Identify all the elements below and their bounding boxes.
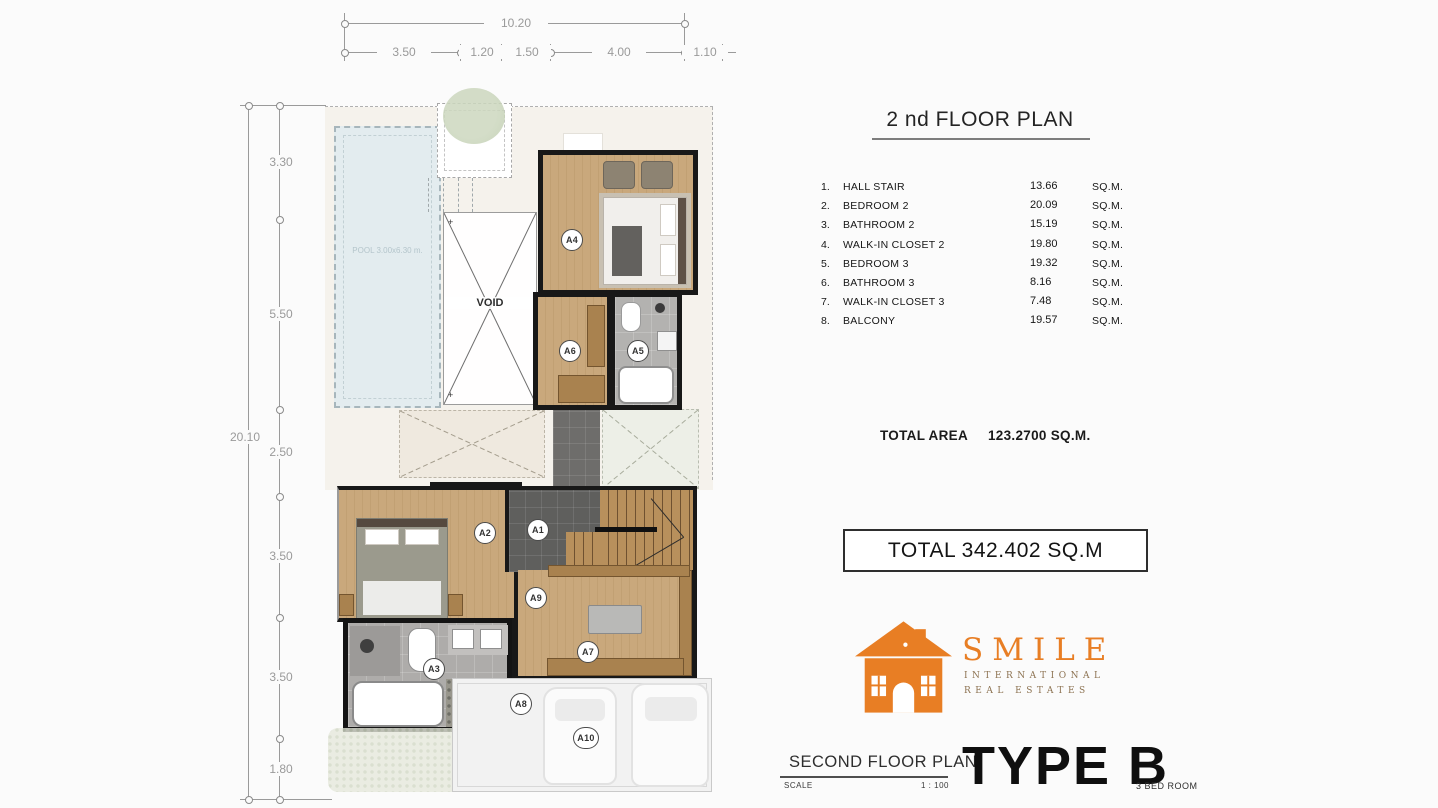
room-marker-a6: A6 — [559, 340, 581, 362]
house-logo-icon — [855, 621, 952, 713]
bed-sheet — [363, 581, 441, 615]
roofline-dashed — [712, 107, 713, 480]
wardrobe — [558, 375, 605, 403]
legend-row-unit: SQ.M. — [1092, 181, 1123, 193]
dim-top-seg-5: 1.10 — [682, 45, 728, 59]
legend-row-unit: SQ.M. — [1092, 315, 1123, 327]
room-marker-a3: A3 — [423, 658, 445, 680]
shower-head-icon — [655, 303, 665, 313]
sink-icon — [657, 331, 677, 351]
walkway-line — [443, 178, 444, 212]
toilet-icon — [621, 302, 641, 332]
legend-row-name: WALK-IN CLOSET 3 — [843, 296, 945, 308]
pillow — [365, 529, 399, 545]
dim-tick-icon — [276, 735, 284, 743]
legend-row-no: 6. — [821, 277, 837, 289]
dim-left-seg-6: 1.80 — [257, 762, 305, 776]
legend-row-name: BEDROOM 2 — [843, 200, 909, 212]
stair-handrail — [595, 527, 657, 532]
stair-direction-lines-icon — [600, 490, 693, 576]
grand-total-box: TOTAL 342.402 SQ.M — [843, 529, 1148, 572]
dim-top-seg-2: 1.20 — [459, 45, 505, 59]
legend-row-no: 8. — [821, 315, 837, 327]
dim-extension-line — [240, 799, 332, 800]
legend-row-name: BALCONY — [843, 315, 895, 327]
legend-row-no: 5. — [821, 258, 837, 270]
legend-row-area: 15.19 — [1030, 218, 1058, 230]
armchair-icon — [603, 161, 635, 189]
page-title: 2 nd FLOOR PLAN — [860, 108, 1100, 132]
legend-row-area: 13.66 — [1030, 180, 1058, 192]
headboard — [678, 198, 686, 284]
dim-tick-icon — [276, 102, 284, 110]
logo-subtext-1: INTERNATIONAL — [964, 671, 1104, 681]
room-marker-a5: A5 — [627, 340, 649, 362]
void-area: VOID + + — [443, 212, 537, 405]
dim-tick-icon — [276, 614, 284, 622]
room-marker-a9: A9 — [525, 587, 547, 609]
headboard — [357, 519, 447, 527]
dim-left-seg-4: 3.50 — [257, 549, 305, 563]
legend-row-unit: SQ.M. — [1092, 277, 1123, 289]
legend-row-area: 20.09 — [1030, 199, 1058, 211]
terrace-open-below — [399, 410, 545, 478]
walkway-line — [458, 178, 459, 212]
walkway-line — [428, 178, 429, 212]
dim-left-overall: 20.10 — [220, 430, 270, 444]
dim-tick-icon — [681, 20, 689, 28]
sink-icon — [452, 629, 474, 649]
armchair-icon — [641, 161, 673, 189]
roofline-dashed — [325, 106, 713, 107]
upper-hall-room — [518, 570, 697, 682]
sink-icon — [480, 629, 502, 649]
throw-blanket — [612, 226, 642, 276]
shower-area — [350, 626, 400, 676]
legend-row-area: 19.57 — [1030, 314, 1058, 326]
table — [588, 605, 642, 634]
dim-tick-icon — [276, 406, 284, 414]
bedroom-3-room — [337, 486, 518, 622]
terrace-x-lines-icon — [400, 411, 544, 477]
floor-plan-sheet: 10.20 3.50 1.20 1.50 4.00 1.10 20.10 3.3 — [0, 0, 1438, 808]
legend-row-name: HALL STAIR — [843, 181, 905, 193]
legend-row-no: 7. — [821, 296, 837, 308]
bathtub-icon — [352, 681, 444, 727]
legend-row-unit: SQ.M. — [1092, 200, 1123, 212]
bathtub-icon — [618, 366, 674, 404]
total-area-value: 123.2700 SQ.M. — [988, 428, 1091, 443]
dim-left-seg-1: 3.30 — [257, 155, 305, 169]
room-marker-a8: A8 — [510, 693, 532, 715]
dim-tick-icon — [276, 216, 284, 224]
bench — [547, 658, 684, 676]
dim-line — [248, 105, 249, 800]
windshield — [555, 699, 605, 721]
dim-left-seg-2: 5.50 — [257, 307, 305, 321]
void-label: VOID — [444, 297, 536, 309]
legend-row-unit: SQ.M. — [1092, 219, 1123, 231]
dim-tick-icon — [341, 49, 349, 57]
dim-tick-icon — [245, 796, 253, 804]
legend-row-area: 7.48 — [1030, 295, 1051, 307]
footer-bedroom-label: 3 BED ROOM — [1136, 781, 1198, 791]
bed — [356, 518, 448, 620]
dim-top-seg-4: 4.00 — [592, 45, 646, 59]
pool-inner-line — [343, 135, 432, 399]
bedroom-2-room — [538, 150, 698, 295]
dim-left-seg-3: 2.50 — [257, 445, 305, 459]
legend-row-area: 19.80 — [1030, 238, 1058, 250]
stair-edge-shelf — [548, 565, 690, 577]
legend-row-name: WALK-IN CLOSET 2 — [843, 239, 945, 251]
dim-left-seg-5: 3.50 — [257, 670, 305, 684]
dim-tick-icon — [276, 796, 284, 804]
legend-row-no: 4. — [821, 239, 837, 251]
pool: POOL 3.00x6.30 m. — [334, 126, 441, 408]
legend-row-name: BATHROOM 3 — [843, 277, 915, 289]
legend-row-name: BATHROOM 2 — [843, 219, 915, 231]
nightstand — [448, 594, 463, 616]
pillow — [405, 529, 439, 545]
car-icon — [631, 683, 709, 787]
nightstand — [339, 594, 354, 616]
legend-row-no: 3. — [821, 219, 837, 231]
walkway-line — [472, 178, 473, 212]
logo-brand-text: SMILE — [962, 632, 1115, 668]
legend-row-unit: SQ.M. — [1092, 239, 1123, 251]
tree-icon — [443, 88, 505, 144]
wardrobe — [587, 305, 605, 367]
total-area-label: TOTAL AREA — [880, 428, 968, 443]
footer-plan-name: SECOND FLOOR PLAN — [789, 753, 977, 772]
dim-top-seg-3: 1.50 — [503, 45, 551, 59]
legend-row-area: 8.16 — [1030, 276, 1051, 288]
legend-row-area: 19.32 — [1030, 257, 1058, 269]
footer-scale-label: SCALE — [784, 781, 813, 790]
dim-top-seg-1: 3.50 — [377, 45, 431, 59]
legend-row-unit: SQ.M. — [1092, 258, 1123, 270]
room-marker-a1: A1 — [527, 519, 549, 541]
legend-row-name: BEDROOM 3 — [843, 258, 909, 270]
dim-top-overall: 10.20 — [484, 16, 548, 30]
grass-patch — [328, 728, 462, 792]
legend-row-unit: SQ.M. — [1092, 296, 1123, 308]
dim-tick-icon — [341, 20, 349, 28]
legend-row-no: 1. — [821, 181, 837, 193]
logo-subtext-2: REAL ESTATES — [964, 686, 1090, 696]
plus-mark-icon: + — [448, 390, 453, 400]
dim-tick-icon — [245, 102, 253, 110]
pillow — [660, 204, 676, 236]
terrace-x-lines-icon — [603, 410, 698, 488]
plus-mark-icon: + — [448, 217, 453, 227]
shower-head-icon — [360, 639, 374, 653]
room-marker-a10: A10 — [573, 727, 599, 749]
pool-label: POOL 3.00x6.30 m. — [336, 246, 439, 255]
grand-total-text: TOTAL 342.402 SQ.M — [888, 539, 1103, 563]
bed — [603, 197, 687, 285]
room-marker-a4: A4 — [561, 229, 583, 251]
room-marker-a7: A7 — [577, 641, 599, 663]
title-underline — [872, 138, 1090, 140]
terrace-open-below — [602, 409, 699, 489]
corridor — [553, 408, 600, 492]
room-marker-a2: A2 — [474, 522, 496, 544]
pillow — [660, 244, 676, 276]
windshield — [645, 697, 697, 721]
dim-tick-icon — [276, 493, 284, 501]
footer-underline — [780, 776, 948, 778]
footer-scale-value: 1 : 100 — [921, 781, 949, 790]
legend-row-no: 2. — [821, 200, 837, 212]
